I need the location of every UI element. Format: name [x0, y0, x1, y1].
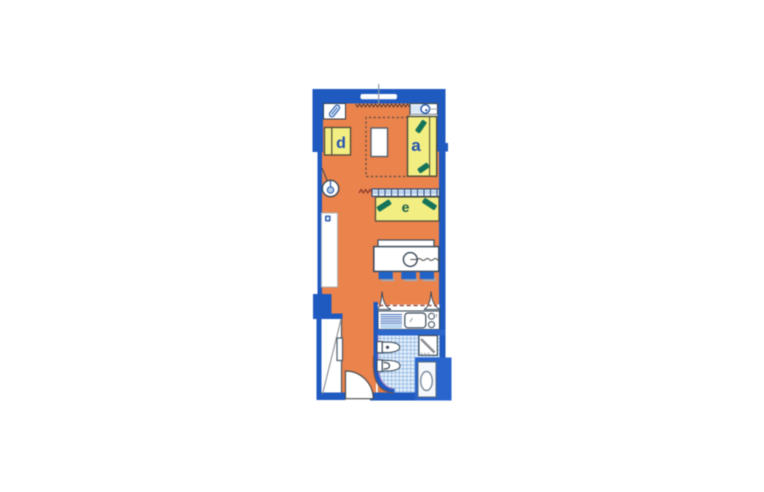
- svg-text:d: d: [336, 135, 346, 152]
- svg-text:a: a: [411, 136, 421, 155]
- svg-text:e: e: [402, 199, 410, 215]
